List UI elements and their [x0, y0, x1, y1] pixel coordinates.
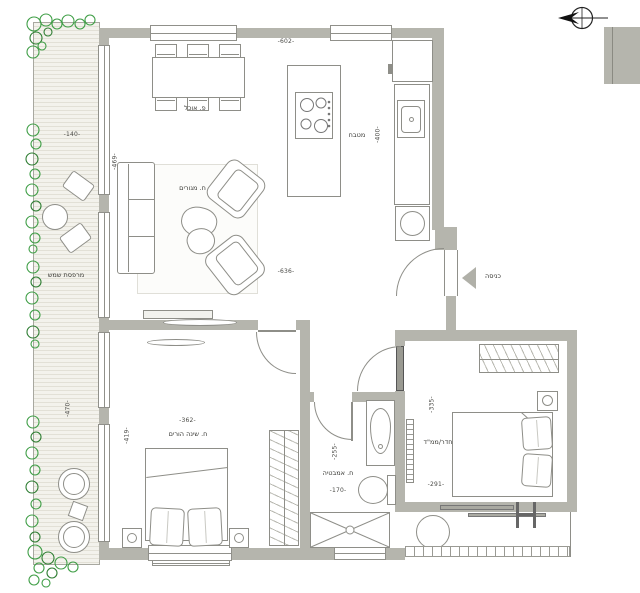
- sofa-back-line: [128, 164, 129, 272]
- dining-chair: [219, 44, 241, 58]
- dim-living-width: -636-: [262, 268, 310, 275]
- plants-icon: [26, 542, 90, 590]
- pillow: [521, 416, 553, 451]
- dining-chair: [187, 44, 209, 58]
- dim-master-height: -419-: [124, 416, 131, 456]
- nightstand-lamp: [127, 533, 137, 543]
- entrance-label: כניסה: [478, 272, 508, 280]
- window: [330, 25, 392, 41]
- nightstand-lamp: [542, 395, 553, 406]
- window: [98, 424, 110, 542]
- wall-bedroom-divider: [296, 320, 310, 330]
- master-bedroom-label: ח. שינה הורים: [158, 430, 218, 438]
- saferoom-label: חדר/ממ"ד: [412, 438, 464, 446]
- balcony-lounge-chair-cushion: [63, 473, 85, 495]
- saferoom-closet: [479, 344, 559, 373]
- pillow: [521, 453, 553, 488]
- tv-bedroom-icon: [147, 339, 205, 346]
- toilet-bowl: [358, 476, 388, 504]
- dim-bathroom-width: -170-: [315, 487, 361, 494]
- tv-living-icon: [163, 319, 237, 326]
- cooktop-burners-icon: [295, 92, 333, 139]
- wall-entry-jamb: [435, 227, 457, 250]
- balcony-label: מרפסת שמש: [32, 271, 100, 279]
- pillow: [187, 507, 223, 547]
- wall-saferoom-top: [395, 330, 577, 341]
- plants-icon: [24, 122, 48, 254]
- dining-chair: [155, 44, 177, 58]
- wall-right-upper: [432, 38, 444, 230]
- floor-plan: כניסה פ. אוכל ח. מגורים -602- -63: [0, 0, 640, 593]
- dim-living-height: -469-: [112, 144, 119, 180]
- dim-saferoom-width: -291-: [412, 481, 460, 488]
- master-closet: [269, 430, 299, 546]
- shower-drain-icon: [310, 512, 390, 548]
- wall-hall-bathroom: [310, 392, 314, 402]
- dim-kitchen-height: -400-: [375, 115, 382, 155]
- tv-console: [143, 310, 213, 319]
- toilet-tank: [387, 475, 396, 505]
- key-block-line: [612, 27, 613, 84]
- wall-hall-left: [300, 330, 310, 548]
- window-balcony-door: [98, 212, 110, 318]
- porch-table: [416, 515, 450, 549]
- dim-saferoom-height: -335-: [429, 385, 436, 425]
- master-doorway: [258, 320, 296, 330]
- porch-edge: [570, 512, 571, 557]
- washing-machine-drum: [400, 211, 425, 236]
- pillow: [149, 507, 185, 547]
- wall-bathroom-right: [395, 391, 405, 502]
- porch-bench: [440, 505, 514, 510]
- window: [148, 545, 232, 561]
- porch-post-beam: [516, 513, 536, 516]
- wall-saferoom-right: [567, 341, 577, 512]
- dim-balcony-height: -470-: [65, 389, 72, 429]
- window-balcony-door: [98, 45, 110, 195]
- saferoom-door-swing: [357, 346, 401, 391]
- window: [150, 25, 237, 41]
- bathroom-tap: [378, 444, 383, 449]
- kitchen-tap: [409, 117, 414, 122]
- porch-planter-strip: [405, 546, 570, 557]
- dim-bathroom-height: -255-: [332, 432, 339, 472]
- window: [98, 332, 110, 408]
- saferoom-window: [406, 419, 414, 483]
- window-sill: [152, 560, 230, 566]
- dining-label: פ. אוכל: [165, 104, 225, 112]
- kitchen-label: מטבח: [340, 131, 374, 139]
- fridge: [392, 40, 433, 82]
- dim-top-width: -602-: [262, 38, 310, 45]
- dining-table: [152, 57, 245, 98]
- key-block: [604, 27, 640, 84]
- dim-balcony-width: -140-: [52, 131, 92, 138]
- living-room-label: ח. מגורים: [165, 184, 220, 192]
- plants-icon: [26, 12, 102, 62]
- entrance-arrow-icon: [462, 267, 476, 289]
- entrance-doorway: [444, 250, 458, 296]
- master-door-swing: [256, 332, 296, 374]
- sofa-cushion-line: [128, 236, 154, 237]
- fridge-handle: [388, 64, 392, 74]
- sofa: [117, 162, 155, 274]
- plants-icon: [24, 414, 48, 548]
- entrance-door-swing: [396, 248, 444, 296]
- nightstand-lamp: [234, 533, 244, 543]
- sofa-cushion-line: [128, 199, 154, 200]
- dim-master-width: -362-: [165, 417, 210, 424]
